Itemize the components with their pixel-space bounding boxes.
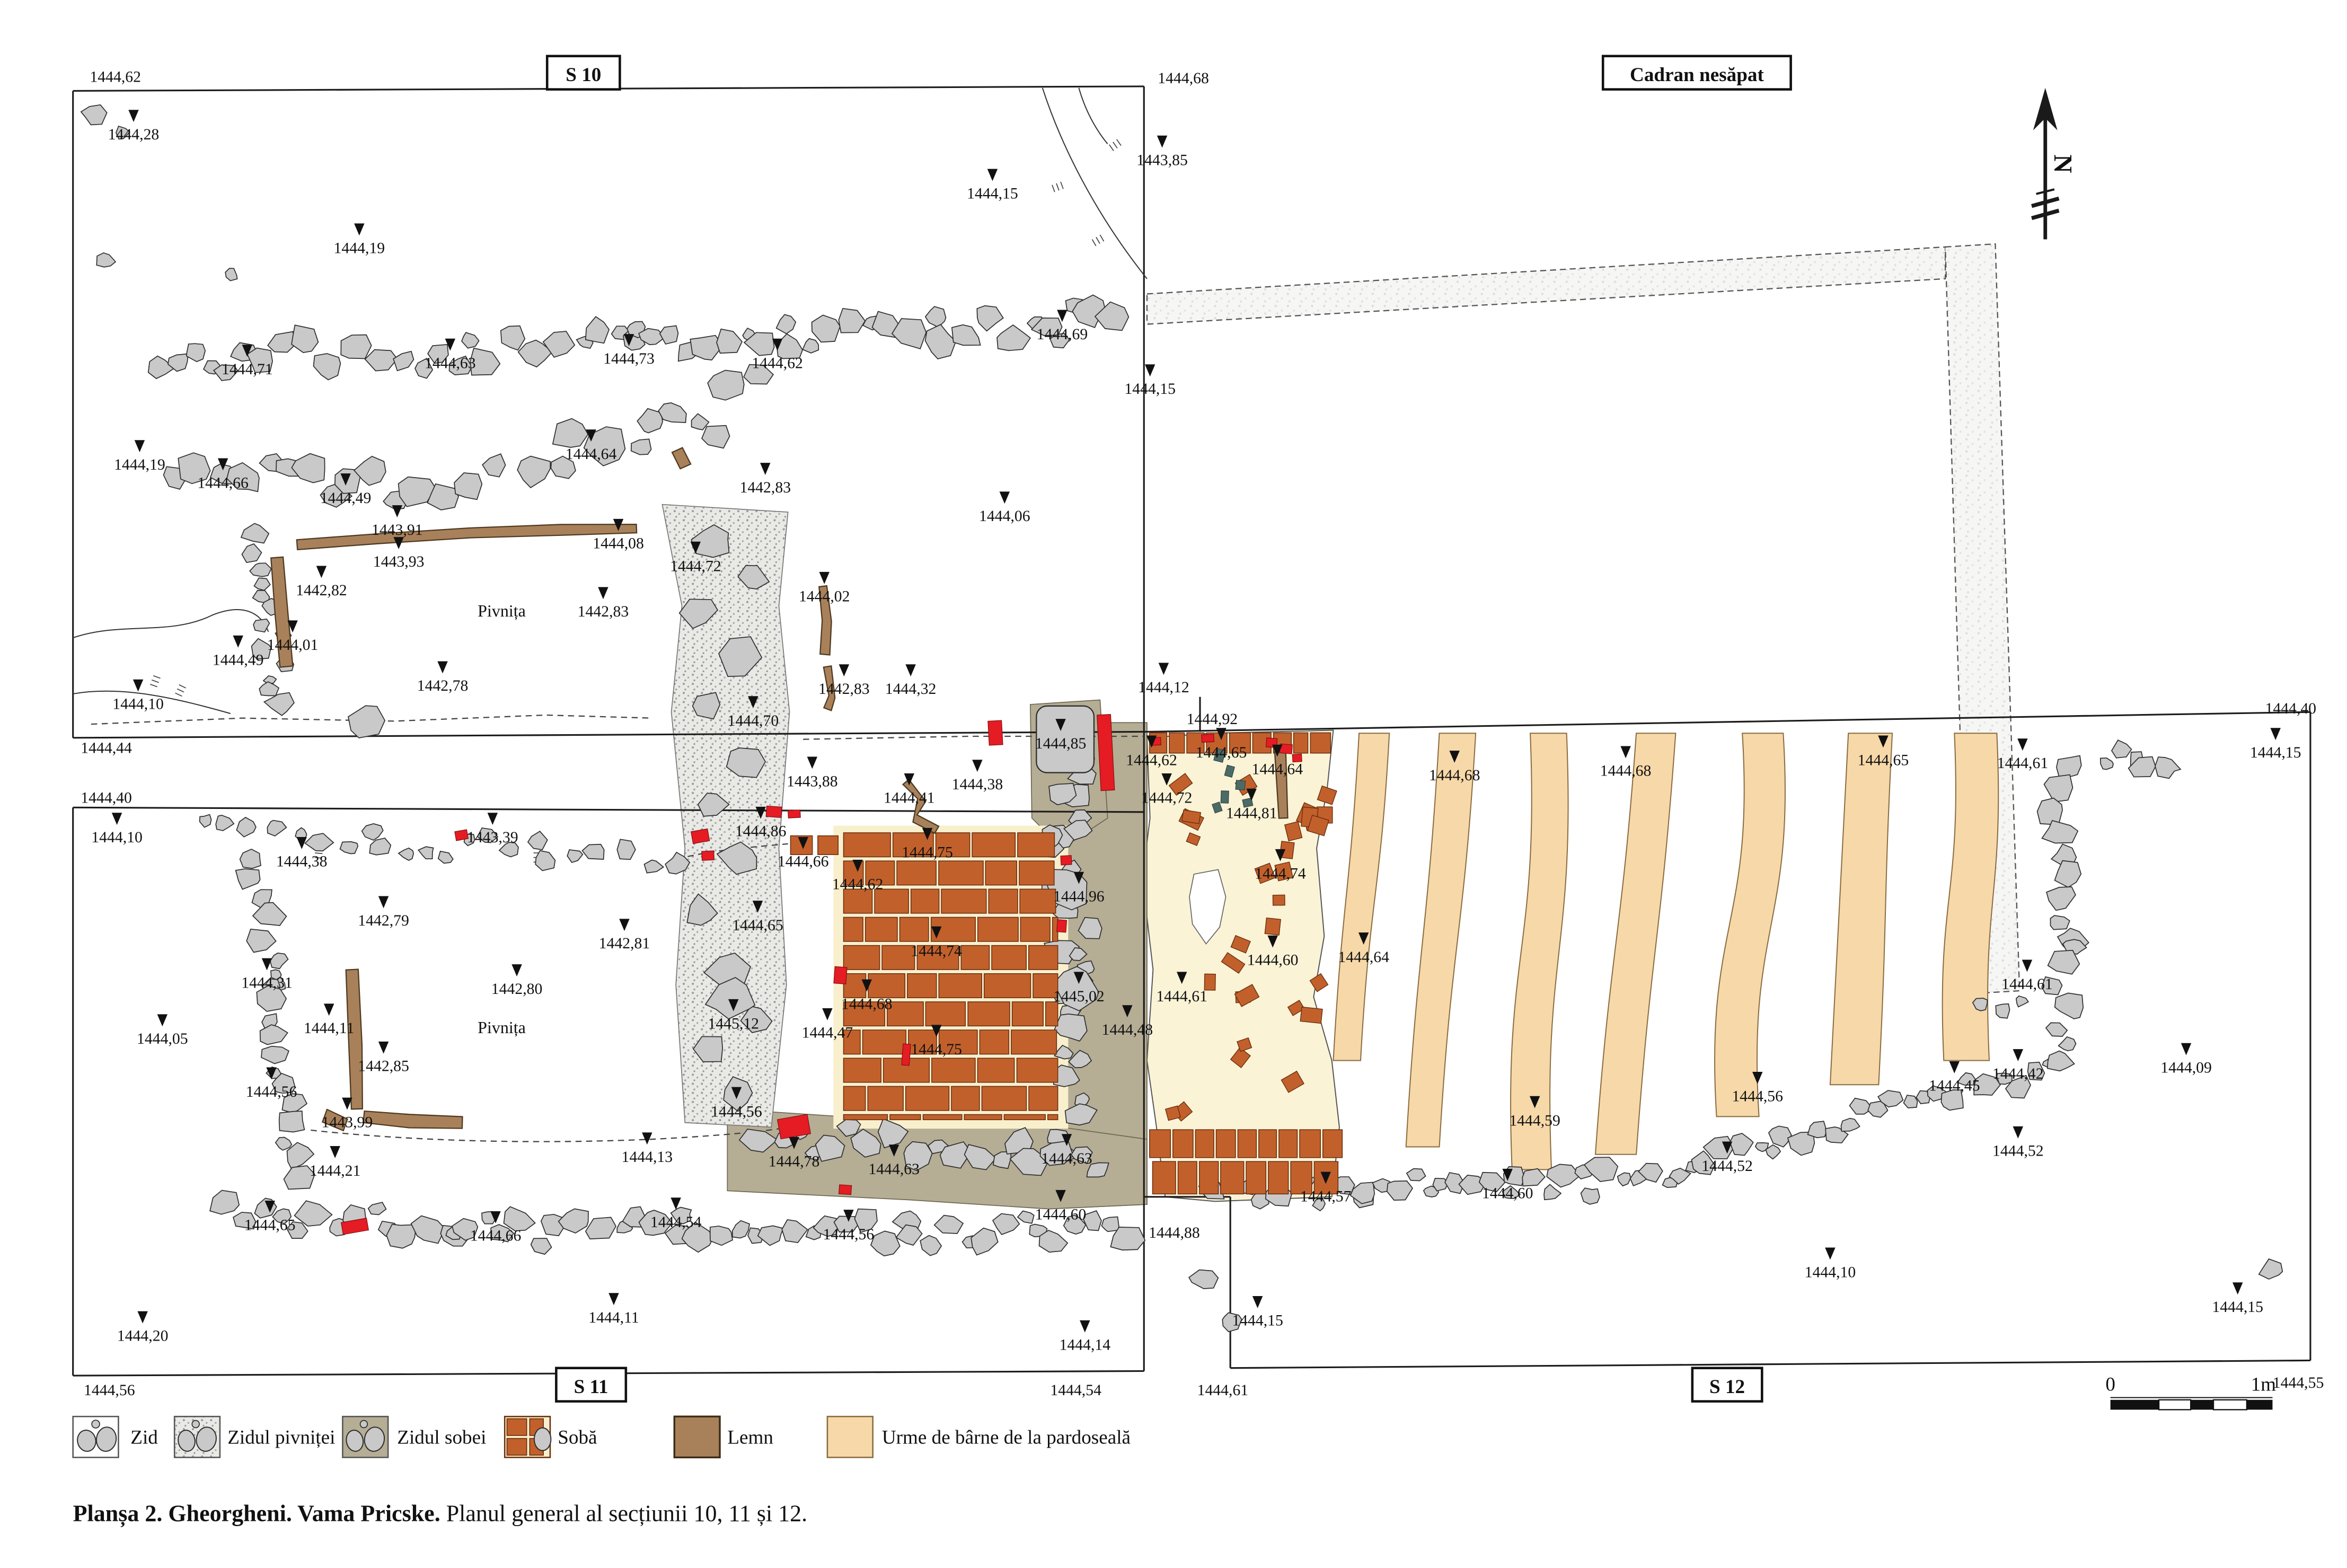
elevation-marker: 1444,20 xyxy=(117,1311,169,1345)
stone xyxy=(535,851,555,871)
stone xyxy=(925,324,956,359)
elevation-value: 1444,65 xyxy=(244,1217,296,1234)
stone xyxy=(2112,740,2131,758)
legend-item-zidul-sobei: Zidul sobei xyxy=(342,1416,486,1457)
burnt-fragment xyxy=(1061,856,1072,865)
legend-item-lemn: Lemn xyxy=(674,1416,773,1457)
elevation-marker: 1444,15 xyxy=(1232,1296,1283,1329)
stove-brick xyxy=(844,833,891,857)
stone xyxy=(96,253,116,267)
elevation-value: 1444,66 xyxy=(470,1228,522,1245)
elevation-value: 1444,15 xyxy=(1124,381,1176,398)
elevation-marker: 1442,83 xyxy=(578,587,629,620)
stone xyxy=(200,815,211,827)
elevation-value: 1444,15 xyxy=(2212,1299,2263,1316)
elevation-marker: 1444,10 xyxy=(1805,1248,1856,1281)
elevation-value: 1444,56 xyxy=(1732,1088,1783,1105)
stone xyxy=(241,523,269,543)
stone xyxy=(2059,1037,2076,1051)
legend-label: Zidul pivniței xyxy=(227,1427,335,1449)
stove-brick xyxy=(863,1030,906,1054)
stove-brick xyxy=(844,974,866,998)
elevation-value: 1444,63 xyxy=(425,355,476,372)
stove-brick xyxy=(887,1002,923,1026)
stone xyxy=(225,268,237,280)
scale-bar: 0 1m xyxy=(2105,1374,2276,1410)
stove-brick xyxy=(1046,1002,1058,1026)
elevation-value: 1444,12 xyxy=(1138,679,1189,696)
elevation-value: 1444,38 xyxy=(952,776,1003,793)
elevation-marker-icon xyxy=(137,1311,147,1324)
stone xyxy=(1102,1217,1119,1232)
section-label-s10: S 10 xyxy=(547,56,620,90)
elevation-marker: 1444,15 xyxy=(2250,728,2301,761)
legend-label: Urme de bârne de la pardoseală xyxy=(882,1427,1131,1449)
elevation-value: 1444,68 xyxy=(841,996,893,1012)
brick-fragment xyxy=(1273,895,1285,905)
burnt-fragment xyxy=(702,851,714,860)
corner-elevation-value: 1444,40 xyxy=(2265,700,2316,717)
stove-brick xyxy=(868,1086,903,1110)
stove-brick xyxy=(923,1115,962,1120)
stone xyxy=(567,850,583,862)
stove-brick xyxy=(844,1115,888,1120)
elevation-marker-icon xyxy=(324,1003,334,1016)
stone xyxy=(340,842,358,854)
area-label-pivnita-s10: Pivnița xyxy=(478,601,526,620)
stove-brick xyxy=(961,946,989,970)
elevation-marker-icon xyxy=(1252,1296,1263,1308)
elevation-value: 1444,66 xyxy=(778,853,829,870)
burnt-fragment xyxy=(766,806,782,817)
stone xyxy=(1618,1173,1631,1186)
elevation-value: 1444,28 xyxy=(108,126,160,143)
stone xyxy=(2101,758,2113,770)
stone xyxy=(702,426,730,448)
elevation-value: 1444,38 xyxy=(276,853,328,870)
elevation-value: 1443,91 xyxy=(372,522,423,539)
elevation-marker: 1444,10 xyxy=(91,813,143,846)
elevation-marker-icon xyxy=(598,587,608,599)
elevation-marker-icon xyxy=(905,664,915,676)
wood-beam xyxy=(297,524,637,550)
stone xyxy=(617,839,636,859)
floor-beam-trace xyxy=(1406,733,1476,1147)
stove-brick xyxy=(818,836,838,855)
section-label-text: S 12 xyxy=(1709,1376,1745,1398)
elevation-marker-icon xyxy=(608,1293,619,1305)
elevation-value: 1444,13 xyxy=(622,1149,673,1166)
stone xyxy=(236,817,256,837)
stove-brick xyxy=(907,974,937,998)
stove-brick xyxy=(972,833,1015,857)
elevation-value: 1442,79 xyxy=(358,912,409,929)
contour-line xyxy=(1079,88,1107,144)
elevation-marker-icon xyxy=(642,1132,652,1144)
stove-brick xyxy=(1020,889,1055,913)
stone xyxy=(1018,1211,1034,1223)
stone xyxy=(386,1225,416,1248)
stove-brick xyxy=(844,1058,881,1082)
stone xyxy=(531,1238,552,1254)
stone xyxy=(1387,1181,1413,1200)
stone xyxy=(871,1231,900,1256)
stove-brick xyxy=(1178,1161,1197,1194)
elevation-value: 1444,63 xyxy=(868,1161,920,1178)
elevation-value: 1444,56 xyxy=(246,1083,297,1100)
elevation-value: 1445,12 xyxy=(708,1016,759,1033)
stove-brick xyxy=(882,946,914,970)
elevation-value: 1444,64 xyxy=(566,446,617,463)
elevation-value: 1444,15 xyxy=(1232,1312,1283,1329)
elevation-value: 1444,72 xyxy=(670,558,721,575)
elevation-value: 1444,60 xyxy=(1035,1206,1087,1223)
elevation-value: 1444,56 xyxy=(711,1103,762,1120)
stove-brick xyxy=(932,1058,975,1082)
elevation-value: 1442,78 xyxy=(417,677,469,694)
elevation-value: 1444,11 xyxy=(588,1309,639,1326)
stove-brick xyxy=(911,889,939,913)
elevation-marker-icon xyxy=(378,896,389,908)
stone xyxy=(1904,1095,1918,1108)
area-label-pivnita-s11: Pivnița xyxy=(478,1018,526,1037)
elevation-value: 1444,68 xyxy=(1600,762,1652,779)
stove-brick xyxy=(897,861,936,885)
corner-elevation-value: 1444,88 xyxy=(1149,1225,1200,1241)
burnt-fragment xyxy=(788,810,801,818)
elevation-marker-icon xyxy=(316,566,327,578)
elevation-value: 1444,64 xyxy=(1251,761,1303,778)
elevation-marker: 1443,91 xyxy=(372,505,423,539)
stone xyxy=(2057,756,2081,777)
stove-brick xyxy=(1011,1030,1056,1054)
elevation-value: 1444,01 xyxy=(267,637,319,654)
elevation-marker-icon xyxy=(1825,1248,1835,1260)
stone xyxy=(553,419,588,447)
stone xyxy=(2044,775,2072,802)
elevation-value: 1444,06 xyxy=(979,508,1030,525)
elevation-marker: 1442,85 xyxy=(358,1042,409,1075)
elevation-value: 1444,10 xyxy=(91,829,143,846)
stove-brick xyxy=(1221,1161,1244,1194)
stove-brick xyxy=(939,861,983,885)
stone xyxy=(411,1216,445,1244)
stove-brick xyxy=(1048,1115,1058,1120)
elevation-marker: 1442,79 xyxy=(358,896,409,929)
stone xyxy=(1841,1118,1860,1131)
stove-brick xyxy=(1012,1002,1044,1026)
stove-brick xyxy=(989,889,1018,913)
stone xyxy=(583,844,604,859)
elevation-value: 1444,10 xyxy=(1805,1264,1856,1281)
elevation-marker: 1442,83 xyxy=(739,463,791,496)
elevation-value: 1442,80 xyxy=(491,981,543,998)
stone xyxy=(1769,1126,1792,1147)
elevation-marker: 1444,42 xyxy=(1992,1049,2044,1082)
legend-item-zidul-pivnitei: Zidul pivniței xyxy=(174,1416,335,1457)
stone xyxy=(1730,1133,1753,1155)
stone xyxy=(2050,915,2069,930)
elevation-marker-icon xyxy=(262,958,272,971)
elevation-marker: 1444,02 xyxy=(799,572,850,605)
brick-fragment xyxy=(1300,1007,1322,1024)
hachure-tick xyxy=(1117,139,1121,146)
hachure-tick xyxy=(1052,185,1055,192)
stone xyxy=(399,848,413,860)
elevation-value: 1444,71 xyxy=(222,361,273,378)
hachure-tick xyxy=(1113,142,1117,148)
elevation-marker: 1444,21 xyxy=(310,1146,361,1179)
elevation-value: 1444,81 xyxy=(1226,805,1277,822)
stone xyxy=(253,619,269,632)
stone xyxy=(276,1137,292,1150)
wood-beam xyxy=(346,970,363,1109)
floor-beam-trace xyxy=(1715,733,1785,1116)
elevation-marker: 1443,88 xyxy=(787,757,838,790)
elevation-marker: 1442,78 xyxy=(417,662,469,695)
elevation-value: 1443,88 xyxy=(787,773,838,790)
burnt-fragment xyxy=(691,829,710,844)
stone xyxy=(418,847,433,859)
elevation-marker-icon xyxy=(1949,1061,1960,1073)
elevation-value: 1443,93 xyxy=(373,553,425,570)
elevation-value: 1444,08 xyxy=(593,535,644,552)
stone xyxy=(977,306,1003,331)
wood-beam xyxy=(672,448,691,469)
stove-brick xyxy=(868,974,905,998)
stone xyxy=(482,454,505,477)
stove-brick xyxy=(1029,946,1058,970)
elevation-marker: 1444,45 xyxy=(1929,1061,1980,1095)
elevation-value: 1442,83 xyxy=(578,603,629,620)
stone xyxy=(1996,1004,2009,1018)
stone xyxy=(2046,887,2076,910)
scale-one-meter-label: 1m xyxy=(2251,1374,2277,1396)
elevation-marker: 1444,65 xyxy=(244,1201,296,1234)
stone xyxy=(81,105,107,125)
elevation-marker-icon xyxy=(619,919,629,931)
stove-brick xyxy=(844,1086,866,1110)
stone xyxy=(2048,1051,2075,1071)
elevation-marker-icon xyxy=(157,1014,167,1026)
elevation-marker: 1444,14 xyxy=(1060,1320,1111,1354)
stove-brick xyxy=(978,918,1018,941)
stone xyxy=(462,332,479,348)
floor-beam-trace xyxy=(1334,733,1390,1060)
scale-zero-label: 0 xyxy=(2105,1374,2115,1396)
stone xyxy=(216,815,234,831)
stone xyxy=(517,456,550,488)
stove-brick xyxy=(1020,918,1050,941)
section-boundary xyxy=(73,732,1147,737)
elevation-value: 1444,57 xyxy=(1300,1188,1352,1205)
contour-line xyxy=(73,610,269,638)
stove-brick xyxy=(982,1086,1026,1110)
stone xyxy=(758,1226,783,1245)
stove-brick xyxy=(1195,1130,1214,1158)
elevation-marker: 1444,13 xyxy=(622,1132,673,1166)
caption-rest: Planul general al secțiunii 10, 11 și 12… xyxy=(440,1500,807,1526)
elevation-marker-icon xyxy=(2022,960,2032,972)
stone xyxy=(292,325,318,353)
hachure-tick xyxy=(179,685,186,688)
stove-brick xyxy=(1279,1130,1298,1158)
stone xyxy=(254,578,270,590)
burnt-fragment xyxy=(1057,920,1067,932)
stone xyxy=(1808,1121,1827,1138)
elevation-marker-icon xyxy=(972,760,982,772)
stove-brick xyxy=(900,918,929,941)
stove-brick xyxy=(1173,1130,1193,1158)
stone xyxy=(934,1215,963,1234)
elevation-marker: 1444,15 xyxy=(1124,364,1176,398)
elevation-value: 1442,83 xyxy=(739,479,791,496)
elevation-value: 1444,63 xyxy=(1041,1150,1092,1167)
stone xyxy=(2155,757,2181,778)
elevation-value: 1444,66 xyxy=(197,474,249,491)
elevation-marker: 1444,54 xyxy=(650,1197,702,1231)
elevation-value: 1444,31 xyxy=(241,974,293,991)
stove-brick xyxy=(1017,1058,1057,1082)
stone xyxy=(812,315,840,342)
stone xyxy=(839,309,865,333)
elevation-value: 1444,47 xyxy=(802,1025,853,1042)
caption-bold: Planșa 2. Gheorgheni. Vama Pricske. xyxy=(73,1500,440,1527)
legend-item-zid: Zid xyxy=(73,1416,158,1457)
elevation-marker-icon xyxy=(1159,663,1169,675)
elevation-value: 1444,56 xyxy=(823,1226,875,1243)
elevation-marker: 1444,15 xyxy=(2212,1282,2263,1316)
hachure-tick xyxy=(1056,183,1059,190)
elevation-value: 1444,60 xyxy=(1247,952,1299,969)
stove-brick xyxy=(1029,1086,1058,1110)
stone xyxy=(210,1191,239,1214)
stove-brick xyxy=(1238,1130,1256,1158)
stove-brick xyxy=(984,974,1031,998)
elevation-value: 1444,52 xyxy=(1992,1143,2044,1160)
elevation-marker: 1444,15 xyxy=(967,169,1018,202)
stone xyxy=(368,1202,386,1214)
elevation-marker-icon xyxy=(128,110,138,122)
section-boundary xyxy=(1230,1360,2310,1368)
legend-label: Lemn xyxy=(727,1427,773,1449)
corner-elevation-value: 1444,55 xyxy=(2273,1375,2324,1391)
burnt-fragment xyxy=(839,1185,852,1195)
stone xyxy=(341,335,371,359)
section-label-text: S 10 xyxy=(566,64,601,86)
section-label-s12: S 12 xyxy=(1692,1368,1762,1402)
stone xyxy=(369,838,391,855)
stone xyxy=(1544,1184,1561,1200)
corner-elevation-value: 1444,68 xyxy=(1158,70,1209,87)
stone xyxy=(631,439,651,454)
stove-brick xyxy=(1216,1130,1236,1158)
stove-brick xyxy=(1294,733,1308,753)
elevation-marker: 1443,99 xyxy=(322,1098,373,1131)
stove-brick xyxy=(941,889,986,913)
stone xyxy=(292,454,324,483)
elevation-marker-icon xyxy=(133,680,143,692)
stone xyxy=(993,1214,1019,1235)
stove-brick xyxy=(1259,1130,1276,1158)
plan-canvas: 1444,281444,191444,151443,851444,691444,… xyxy=(0,0,2347,1568)
stove-brick xyxy=(951,1086,980,1110)
stone xyxy=(246,929,276,953)
stove-brick xyxy=(992,946,1026,970)
corner-elevation-value: 1444,54 xyxy=(1050,1382,1101,1399)
stone xyxy=(1039,1230,1067,1252)
stove-brick xyxy=(1169,733,1185,753)
elevation-value: 1444,61 xyxy=(1997,755,2049,772)
hachure-tick xyxy=(1109,145,1114,151)
stone xyxy=(1189,1270,1218,1289)
slate-fragment xyxy=(1236,780,1246,790)
section-boundary xyxy=(73,807,1144,812)
stone xyxy=(236,869,260,889)
stone xyxy=(925,306,946,327)
stove-brick xyxy=(866,918,897,941)
elevation-value: 1444,65 xyxy=(732,917,783,934)
stone xyxy=(365,350,398,371)
elevation-value: 1442,85 xyxy=(358,1058,409,1075)
stone xyxy=(250,563,271,576)
stove-brick xyxy=(890,1115,921,1120)
elevation-marker-icon xyxy=(392,505,402,517)
elevation-value: 1444,15 xyxy=(2250,744,2301,761)
stone xyxy=(2259,1259,2283,1279)
corner-elevation-value: 1444,61 xyxy=(1197,1382,1249,1399)
corner-elevation-value: 1444,44 xyxy=(81,739,132,756)
stove-brick xyxy=(844,918,863,941)
caption: Planșa 2. Gheorgheni. Vama Pricske. Plan… xyxy=(73,1500,808,1527)
stone xyxy=(242,544,261,562)
stove-brick xyxy=(1268,1161,1289,1194)
stone xyxy=(644,860,663,873)
section-label-s11: S 11 xyxy=(556,1368,625,1402)
elevation-value: 1444,45 xyxy=(1929,1078,1980,1095)
elevation-marker: 1444,31 xyxy=(241,958,293,992)
floor-beam-trace xyxy=(1595,733,1675,1155)
stone xyxy=(2054,861,2081,887)
stone xyxy=(187,343,205,362)
elevation-value: 1444,15 xyxy=(967,185,1018,202)
stone xyxy=(717,329,742,353)
floor-beam-trace xyxy=(1830,733,1892,1085)
stone xyxy=(1547,1164,1580,1187)
stone xyxy=(2048,950,2080,974)
stove-brick xyxy=(906,1086,949,1110)
hachure-tick xyxy=(177,689,184,692)
elevation-value: 1444,62 xyxy=(1126,752,1177,769)
section-label-cadran: Cadran nesăpat xyxy=(1603,56,1790,90)
elevation-value: 1444,74 xyxy=(1255,866,1306,883)
stone xyxy=(259,682,279,695)
elevation-marker-icon xyxy=(2013,1126,2023,1139)
stone xyxy=(261,1046,289,1064)
elevation-value: 1442,81 xyxy=(599,935,650,952)
elevation-value: 1444,05 xyxy=(137,1030,188,1047)
wood-beam xyxy=(363,1111,462,1129)
floor-beam-trace xyxy=(1943,733,1999,1060)
elevation-value: 1444,62 xyxy=(832,876,884,893)
elevation-marker: 1444,12 xyxy=(1138,663,1189,696)
stone xyxy=(438,851,453,864)
excavation-plan-sheet: 1444,281444,191444,151443,851444,691444,… xyxy=(0,0,2347,1568)
elevation-marker-icon xyxy=(1080,1320,1090,1333)
elevation-marker: 1444,28 xyxy=(108,110,160,143)
stove-brick xyxy=(1199,1161,1219,1194)
dashed-contour xyxy=(311,1127,788,1141)
